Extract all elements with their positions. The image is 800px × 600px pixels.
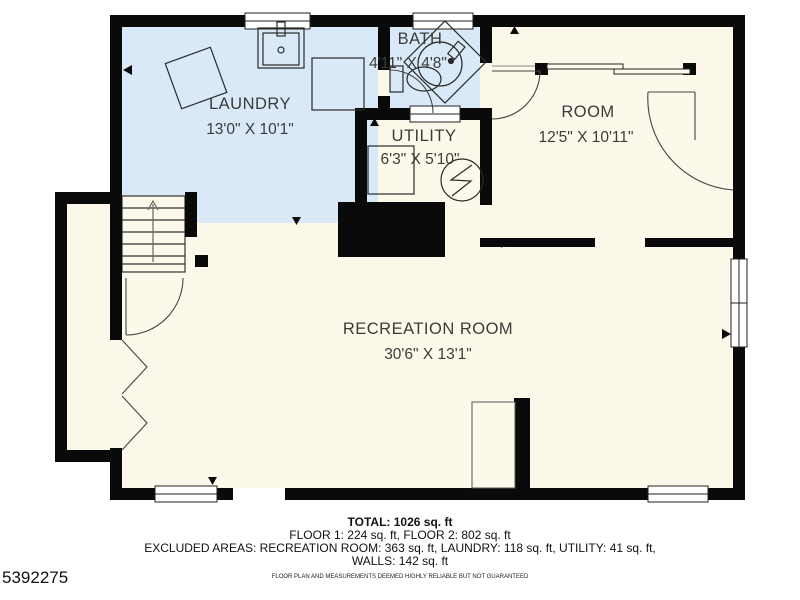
disclaimer-text: FLOOR PLAN AND MEASUREMENTS DEEMED HIGHL…: [0, 574, 800, 580]
chimney: [338, 202, 445, 257]
laundry-label: LAUNDRY: [209, 95, 291, 113]
recreation-room-label: RECREATION ROOM: [343, 320, 513, 338]
utility-label: UTILITY: [392, 127, 457, 145]
recreation-room-dimensions: 30'6" X 13'1": [384, 346, 472, 363]
laundry-dimensions: 13'0" X 10'1": [206, 121, 294, 138]
bath-dimensions: 4'11" X 4'8": [369, 55, 447, 72]
floor-plan: LAUNDRY 13'0" X 10'1" BATH 4'11" X 4'8" …: [0, 0, 800, 510]
bath-label: BATH: [398, 30, 443, 48]
door-leaf-icon: [472, 402, 515, 488]
listing-id: 5392275: [2, 568, 68, 588]
utility-dimensions: 6'3" X 5'10": [381, 151, 460, 168]
area-summary: TOTAL: 1026 sq. ft FLOOR 1: 224 sq. ft, …: [0, 516, 800, 580]
room-dimensions: 12'5" X 10'11": [538, 129, 633, 146]
door-opening: [233, 488, 285, 500]
walls-area: WALLS: 142 sq. ft: [0, 555, 800, 568]
room-label: ROOM: [561, 103, 614, 121]
staircase-icon: [122, 196, 185, 272]
